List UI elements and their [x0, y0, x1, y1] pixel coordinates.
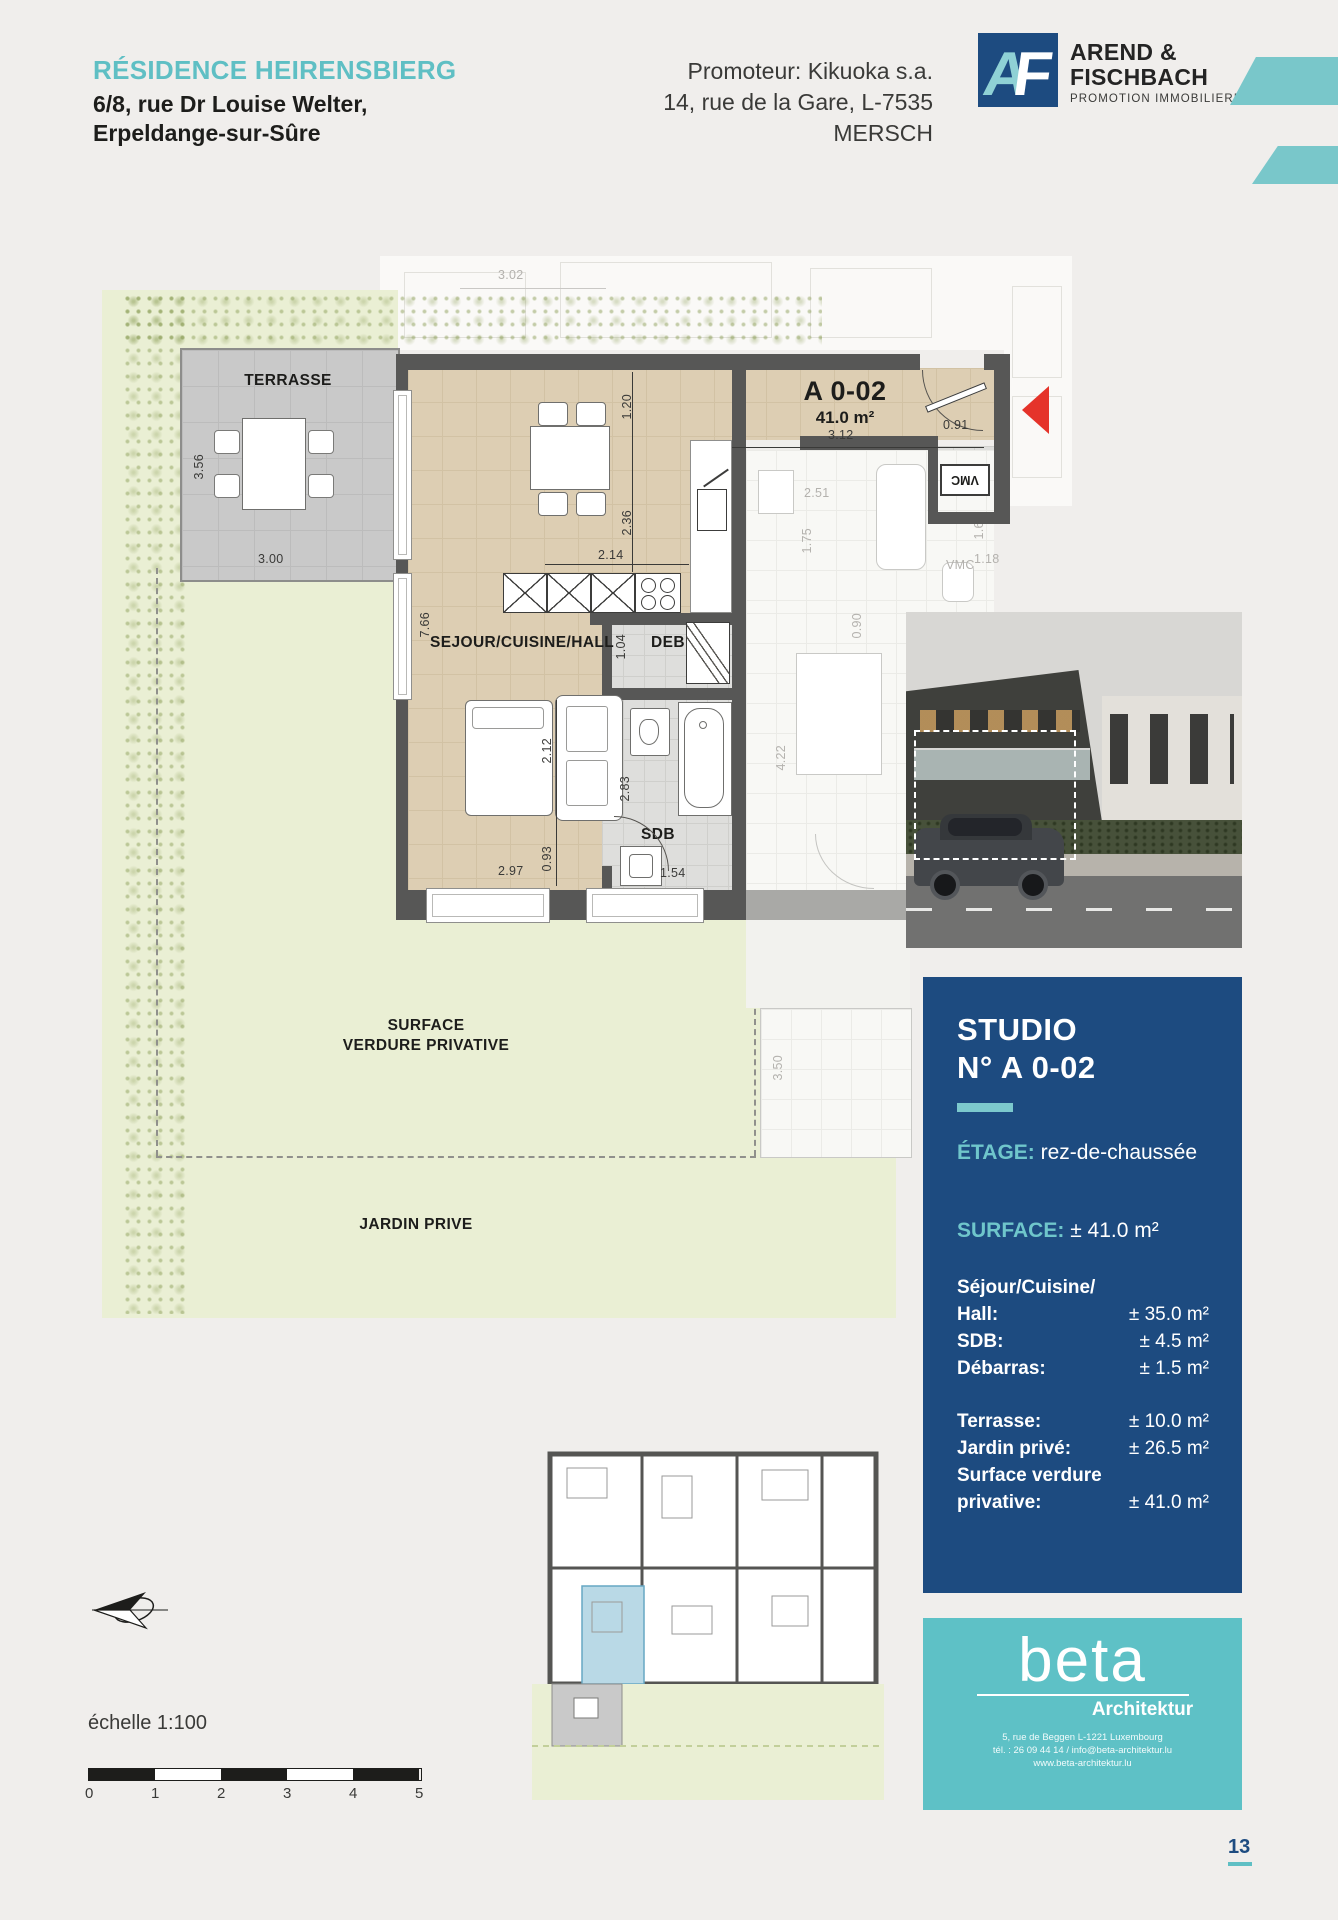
- kitchen-cabinet: [503, 573, 547, 613]
- info-row: Jardin privé:± 26.5 m²: [957, 1435, 1209, 1462]
- dim-label: 2.51: [804, 486, 830, 500]
- window: [393, 573, 412, 700]
- arend-fischbach-name: AREND & FISCHBACH PROMOTION IMMOBILIERE: [1070, 40, 1243, 105]
- promoter-block: Promoteur: Kikuoka s.a. 14, rue de la Ga…: [560, 56, 933, 149]
- neighbor-bathtub: [876, 464, 926, 570]
- dim-label: 3.56: [192, 454, 206, 480]
- brand-tagline: PROMOTION IMMOBILIERE: [1070, 93, 1243, 105]
- wall: [994, 370, 1010, 524]
- wall: [396, 354, 920, 370]
- unit-code-label: A 0-02: [760, 376, 930, 407]
- wall: [984, 354, 1010, 370]
- dim-label: 0.93: [540, 846, 554, 872]
- kitchen-faucet: [703, 469, 729, 488]
- terrace-chair: [214, 430, 240, 454]
- surface-verdure-label: SURFACE VERDURE PRIVATIVE: [326, 1016, 526, 1056]
- architect-address: 5, rue de Beggen L-1221 Luxembourg tél. …: [923, 1731, 1242, 1770]
- residence-address: 6/8, rue Dr Louise Welter, Erpeldange-su…: [93, 90, 456, 148]
- dim-label: 1.18: [974, 552, 1000, 566]
- terrace-chair: [308, 430, 334, 454]
- dining-chair: [576, 402, 606, 426]
- dim-label: 2.97: [498, 864, 524, 878]
- neighbor-structure-faded: [1004, 256, 1072, 506]
- kitchen-cabinet: [591, 573, 635, 613]
- bathtub: [678, 702, 732, 816]
- photo-building-right: [1102, 696, 1242, 822]
- neighbor-sink: [758, 470, 794, 514]
- photo-windows-lit: [920, 710, 1080, 732]
- dining-chair: [576, 492, 606, 516]
- dim-label: 0.91: [943, 418, 969, 432]
- unit-area-label: 41.0 m²: [760, 408, 930, 428]
- dim-label: 1.75: [800, 528, 814, 554]
- dim-label: 1.20: [620, 394, 634, 420]
- info-row: Hall:± 35.0 m²: [957, 1301, 1209, 1328]
- window: [586, 888, 704, 923]
- dim-label: 3.50: [771, 1055, 785, 1081]
- dim-label: 4.22: [774, 745, 788, 771]
- building-photo: [906, 612, 1242, 948]
- dim-label: 2.83: [618, 776, 632, 802]
- dim-label: 2.36: [620, 510, 634, 536]
- scale-tick: 2: [217, 1785, 225, 1802]
- promoter-line1: Promoteur: Kikuoka s.a.: [560, 56, 933, 87]
- storage-closet: [686, 622, 730, 684]
- dim-line: [556, 700, 557, 886]
- residence-address-line2: Erpeldange-sur-Sûre: [93, 119, 456, 148]
- info-row: Débarras:± 1.5 m²: [957, 1355, 1209, 1382]
- window: [426, 888, 550, 923]
- info-row: SDB:± 4.5 m²: [957, 1328, 1209, 1355]
- entrance-arrow-icon: [1022, 386, 1049, 434]
- surface-value: ± 41.0 m²: [1070, 1219, 1159, 1242]
- scale-tick: 5: [415, 1785, 423, 1802]
- wall: [928, 436, 938, 524]
- teal-accent-bar: [957, 1103, 1013, 1112]
- garden-planting-strip: [122, 292, 186, 1314]
- scale-bar: 0 1 2 3 4 5: [88, 1768, 422, 1781]
- vmc-neighbor-label: VMC: [946, 558, 975, 572]
- kitchen-sink: [697, 489, 727, 531]
- dim-label: 3.00: [258, 552, 284, 566]
- neighbor-furniture: [796, 653, 882, 775]
- scale-tick: 0: [85, 1785, 93, 1802]
- overview-plan-drawing: [522, 1446, 894, 1810]
- wall: [928, 512, 1010, 524]
- teal-stripe-decoration: [1230, 57, 1338, 105]
- brand-name-line1: AREND &: [1070, 40, 1243, 65]
- panel-title-line1: STUDIO: [957, 1011, 1212, 1049]
- etage-line: ÉTAGE: rez-de-chaussée: [957, 1140, 1212, 1166]
- neighbor-terrace-faded: 3.50: [760, 1008, 912, 1158]
- dim-label: 1.04: [614, 634, 628, 660]
- dim-label: 3.02: [498, 268, 524, 282]
- photo-unit-outline: [914, 730, 1076, 860]
- etage-label: ÉTAGE:: [957, 1141, 1035, 1164]
- info-row: Surface verdure: [957, 1462, 1209, 1489]
- unit-info-panel: STUDIO N° A 0-02 ÉTAGE: rez-de-chaussée …: [923, 977, 1242, 1593]
- residence-address-line1: 6/8, rue Dr Louise Welter,: [93, 90, 456, 119]
- teal-stripe-decoration: [1252, 146, 1338, 184]
- info-row: privative:± 41.0 m²: [957, 1489, 1209, 1516]
- info-row: Séjour/Cuisine/: [957, 1274, 1209, 1301]
- scale-tick: 4: [349, 1785, 357, 1802]
- brochure-page: { "header": { "residence_title": "RÉSIDE…: [0, 0, 1338, 1920]
- terrace-table: [242, 418, 306, 510]
- vmc-unit-label: VMC: [940, 464, 990, 496]
- dim-label: 0.90: [850, 613, 864, 639]
- dining-chair: [538, 492, 568, 516]
- terrace-chair: [214, 474, 240, 498]
- living-label: SEJOUR/CUISINE/HALL: [430, 634, 610, 652]
- wall: [732, 370, 746, 920]
- dim-label: 2.14: [598, 548, 624, 562]
- sofa: [555, 695, 623, 821]
- page-number: 13: [1228, 1836, 1250, 1859]
- neighbor-wall-faded: [746, 890, 910, 920]
- architect-box: beta Architektur 5, rue de Beggen L-1221…: [923, 1618, 1242, 1810]
- sofa-cushion: [566, 706, 608, 752]
- garden-boundary-dashed: [156, 568, 158, 1156]
- dining-chair: [538, 402, 568, 426]
- garden-boundary-dashed: [156, 1156, 756, 1158]
- terrace-label: TERRASSE: [188, 372, 388, 390]
- car-wheel: [930, 870, 960, 900]
- dim-label: 2.12: [540, 738, 554, 764]
- arend-fischbach-logo-icon: A F: [978, 33, 1058, 107]
- dim-label: 1.54: [660, 866, 686, 880]
- page-number-accent: [1228, 1862, 1252, 1866]
- residence-header: RÉSIDENCE HEIRENSBIERG 6/8, rue Dr Louis…: [93, 55, 456, 148]
- garden-planting-strip: [122, 292, 822, 348]
- north-compass-icon: [88, 1576, 172, 1649]
- neighbor-pavement-faded: [746, 920, 910, 1008]
- architect-subtitle: Architektur: [1092, 1699, 1193, 1721]
- bed-pillow: [472, 707, 544, 729]
- toilet: [630, 708, 670, 756]
- dim-line: [460, 288, 606, 289]
- window: [393, 390, 412, 560]
- architect-logo: beta: [923, 1628, 1242, 1694]
- panel-title-line2: N° A 0-02: [957, 1049, 1212, 1087]
- brand-name-line2: FISCHBACH: [1070, 65, 1243, 90]
- kitchen-stove: [635, 573, 681, 613]
- dim-label: 3.12: [828, 428, 854, 442]
- kitchen-counter: [690, 440, 732, 613]
- dim-label: 7.66: [418, 612, 432, 638]
- residence-title: RÉSIDENCE HEIRENSBIERG: [93, 55, 456, 86]
- terrace-chair: [308, 474, 334, 498]
- etage-value: rez-de-chaussée: [1041, 1141, 1197, 1164]
- overview-plan: [522, 1446, 894, 1810]
- dining-table: [530, 426, 610, 490]
- promoter-line2: 14, rue de la Gare, L-7535 MERSCH: [560, 87, 933, 149]
- surface-label: SURFACE:: [957, 1219, 1064, 1242]
- surface-line: SURFACE: ± 41.0 m²: [957, 1218, 1212, 1244]
- dim-line: [545, 564, 689, 565]
- kitchen-cabinet: [547, 573, 591, 613]
- scale-label: échelle 1:100: [88, 1712, 207, 1735]
- surface-detail-table: Séjour/Cuisine/ Hall:± 35.0 m² SDB:± 4.5…: [957, 1274, 1212, 1516]
- sofa-cushion: [566, 760, 608, 806]
- car-wheel: [1018, 870, 1048, 900]
- dim-line: [722, 447, 984, 448]
- garden-label: JARDIN PRIVE: [326, 1216, 506, 1234]
- scale-tick: 1: [151, 1785, 159, 1802]
- info-row: Terrasse:± 10.0 m²: [957, 1408, 1209, 1435]
- scale-tick: 3: [283, 1785, 291, 1802]
